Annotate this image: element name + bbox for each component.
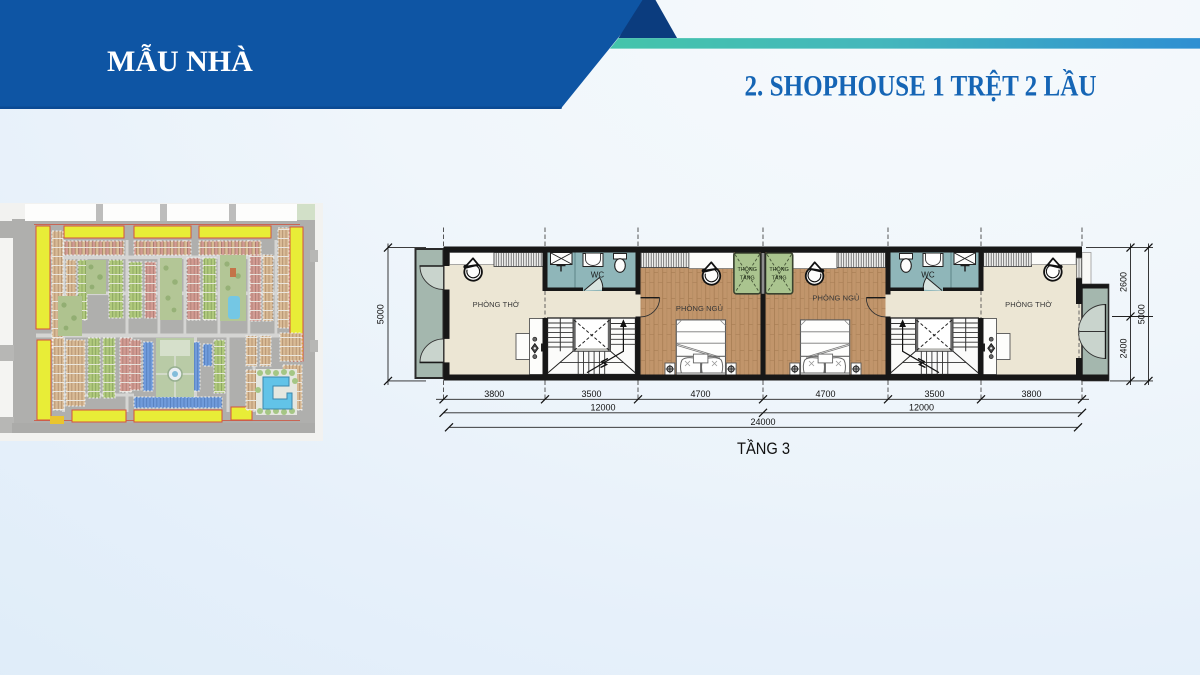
svg-text:PHÒNG THỜ: PHÒNG THỜ	[473, 300, 520, 309]
svg-text:4700: 4700	[815, 389, 835, 399]
svg-text:MẪU NHÀ: MẪU NHÀ	[107, 44, 253, 78]
svg-text:5000: 5000	[1136, 304, 1146, 324]
svg-text:12000: 12000	[590, 402, 615, 412]
svg-text:4700: 4700	[690, 389, 710, 399]
svg-text:3500: 3500	[581, 389, 601, 399]
svg-text:TẦNG: TẦNG	[772, 275, 787, 282]
svg-text:2600: 2600	[1118, 272, 1128, 292]
svg-text:PHÒNG NGỦ: PHÒNG NGỦ	[676, 304, 723, 313]
svg-text:WC: WC	[921, 271, 935, 280]
svg-text:PHÒNG NGỦ: PHÒNG NGỦ	[812, 294, 859, 303]
svg-text:PHÒNG THỜ: PHÒNG THỜ	[1005, 300, 1052, 309]
svg-text:THÔNG: THÔNG	[737, 266, 756, 273]
svg-text:TẦNG: TẦNG	[740, 275, 755, 282]
svg-text:12000: 12000	[909, 402, 934, 412]
svg-text:2. SHOPHOUSE 1 TRỆT 2 LẦU: 2. SHOPHOUSE 1 TRỆT 2 LẦU	[745, 69, 1097, 103]
svg-text:3500: 3500	[924, 389, 944, 399]
svg-text:3800: 3800	[1021, 389, 1041, 399]
svg-text:WC: WC	[591, 271, 605, 280]
svg-text:3800: 3800	[484, 389, 504, 399]
svg-text:THÔNG: THÔNG	[769, 266, 788, 273]
svg-text:24000: 24000	[750, 417, 775, 427]
svg-text:TẦNG 3: TẦNG 3	[737, 439, 790, 458]
svg-text:2400: 2400	[1118, 338, 1128, 358]
svg-text:5000: 5000	[376, 304, 386, 324]
